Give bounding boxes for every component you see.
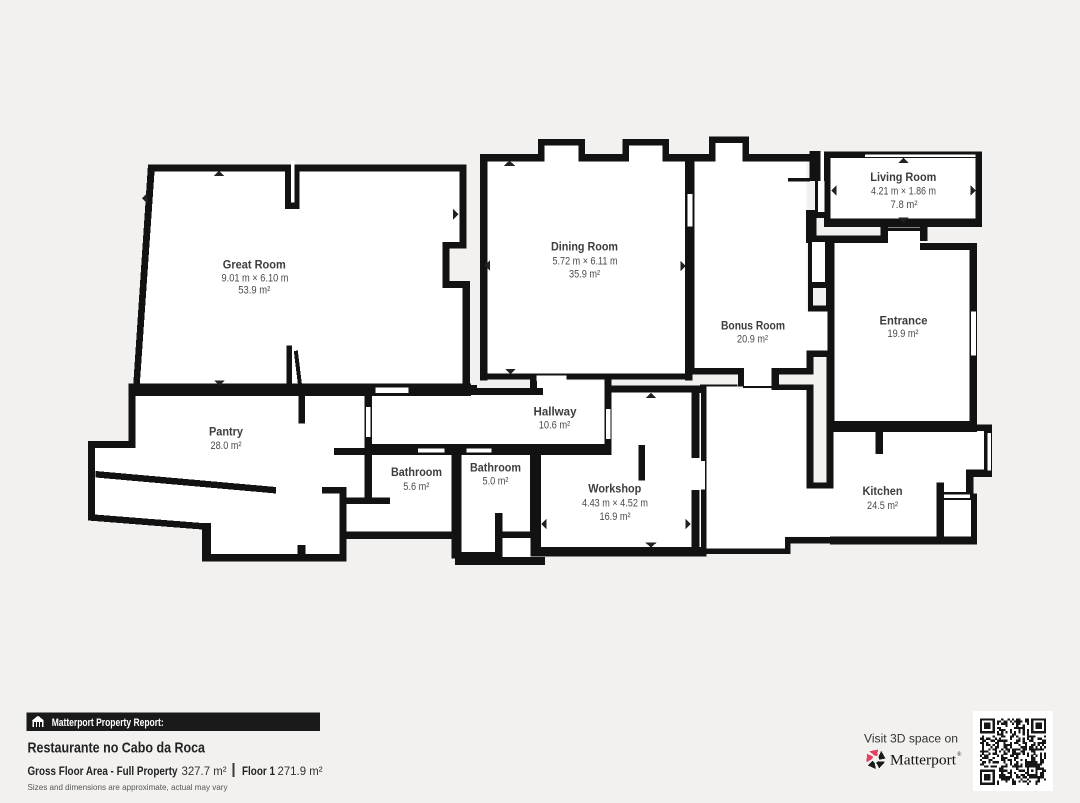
svg-text:271.9 m²: 271.9 m² xyxy=(278,764,323,778)
svg-text:Gross Floor Area - Full Proper: Gross Floor Area - Full Property xyxy=(28,764,178,778)
svg-text:10.6 m²: 10.6 m² xyxy=(539,420,571,432)
svg-text:Bathroom: Bathroom xyxy=(470,463,521,475)
svg-text:35.9 m²: 35.9 m² xyxy=(569,269,600,281)
svg-text:19.9 m²: 19.9 m² xyxy=(888,328,919,340)
svg-text:7.8 m²: 7.8 m² xyxy=(891,199,918,211)
svg-text:28.0 m²: 28.0 m² xyxy=(211,440,242,452)
svg-text:5.0 m²: 5.0 m² xyxy=(483,476,509,488)
svg-text:Hallway: Hallway xyxy=(534,407,578,419)
svg-text:®: ® xyxy=(957,751,962,758)
svg-text:327.7 m²: 327.7 m² xyxy=(182,764,227,778)
svg-text:Restaurante no Cabo da Roca: Restaurante no Cabo da Roca xyxy=(28,740,206,757)
svg-text:5.6 m²: 5.6 m² xyxy=(403,481,429,493)
svg-text:4.21 m × 1.86 m: 4.21 m × 1.86 m xyxy=(871,186,936,198)
svg-text:5.72 m × 6.11 m: 5.72 m × 6.11 m xyxy=(553,256,618,268)
svg-text:Sizes and dimensions are appro: Sizes and dimensions are approximate, ac… xyxy=(28,782,229,792)
svg-text:53.9 m²: 53.9 m² xyxy=(238,285,270,297)
svg-text:9.01 m × 6.10 m: 9.01 m × 6.10 m xyxy=(222,272,289,284)
svg-text:Matterport: Matterport xyxy=(890,753,956,769)
svg-text:4.43 m × 4.52 m: 4.43 m × 4.52 m xyxy=(582,498,648,510)
svg-text:Floor 1: Floor 1 xyxy=(242,764,275,778)
svg-text:Matterport Property Report:: Matterport Property Report: xyxy=(52,717,164,729)
svg-text:Great Room: Great Room xyxy=(223,260,286,272)
svg-text:Living Room: Living Room xyxy=(870,172,936,184)
svg-text:16.9 m²: 16.9 m² xyxy=(600,511,631,523)
svg-text:Pantry: Pantry xyxy=(209,427,244,439)
svg-text:Dining Room: Dining Room xyxy=(551,242,618,254)
svg-text:Kitchen: Kitchen xyxy=(863,486,903,498)
svg-text:Bonus Room: Bonus Room xyxy=(721,321,785,333)
svg-text:Entrance: Entrance xyxy=(880,316,928,328)
svg-text:20.9 m²: 20.9 m² xyxy=(737,334,768,346)
svg-text:24.5 m²: 24.5 m² xyxy=(867,500,898,512)
svg-text:Bathroom: Bathroom xyxy=(391,467,442,479)
svg-text:Workshop: Workshop xyxy=(588,484,641,496)
svg-text:Visit 3D space on: Visit 3D space on xyxy=(864,734,958,746)
